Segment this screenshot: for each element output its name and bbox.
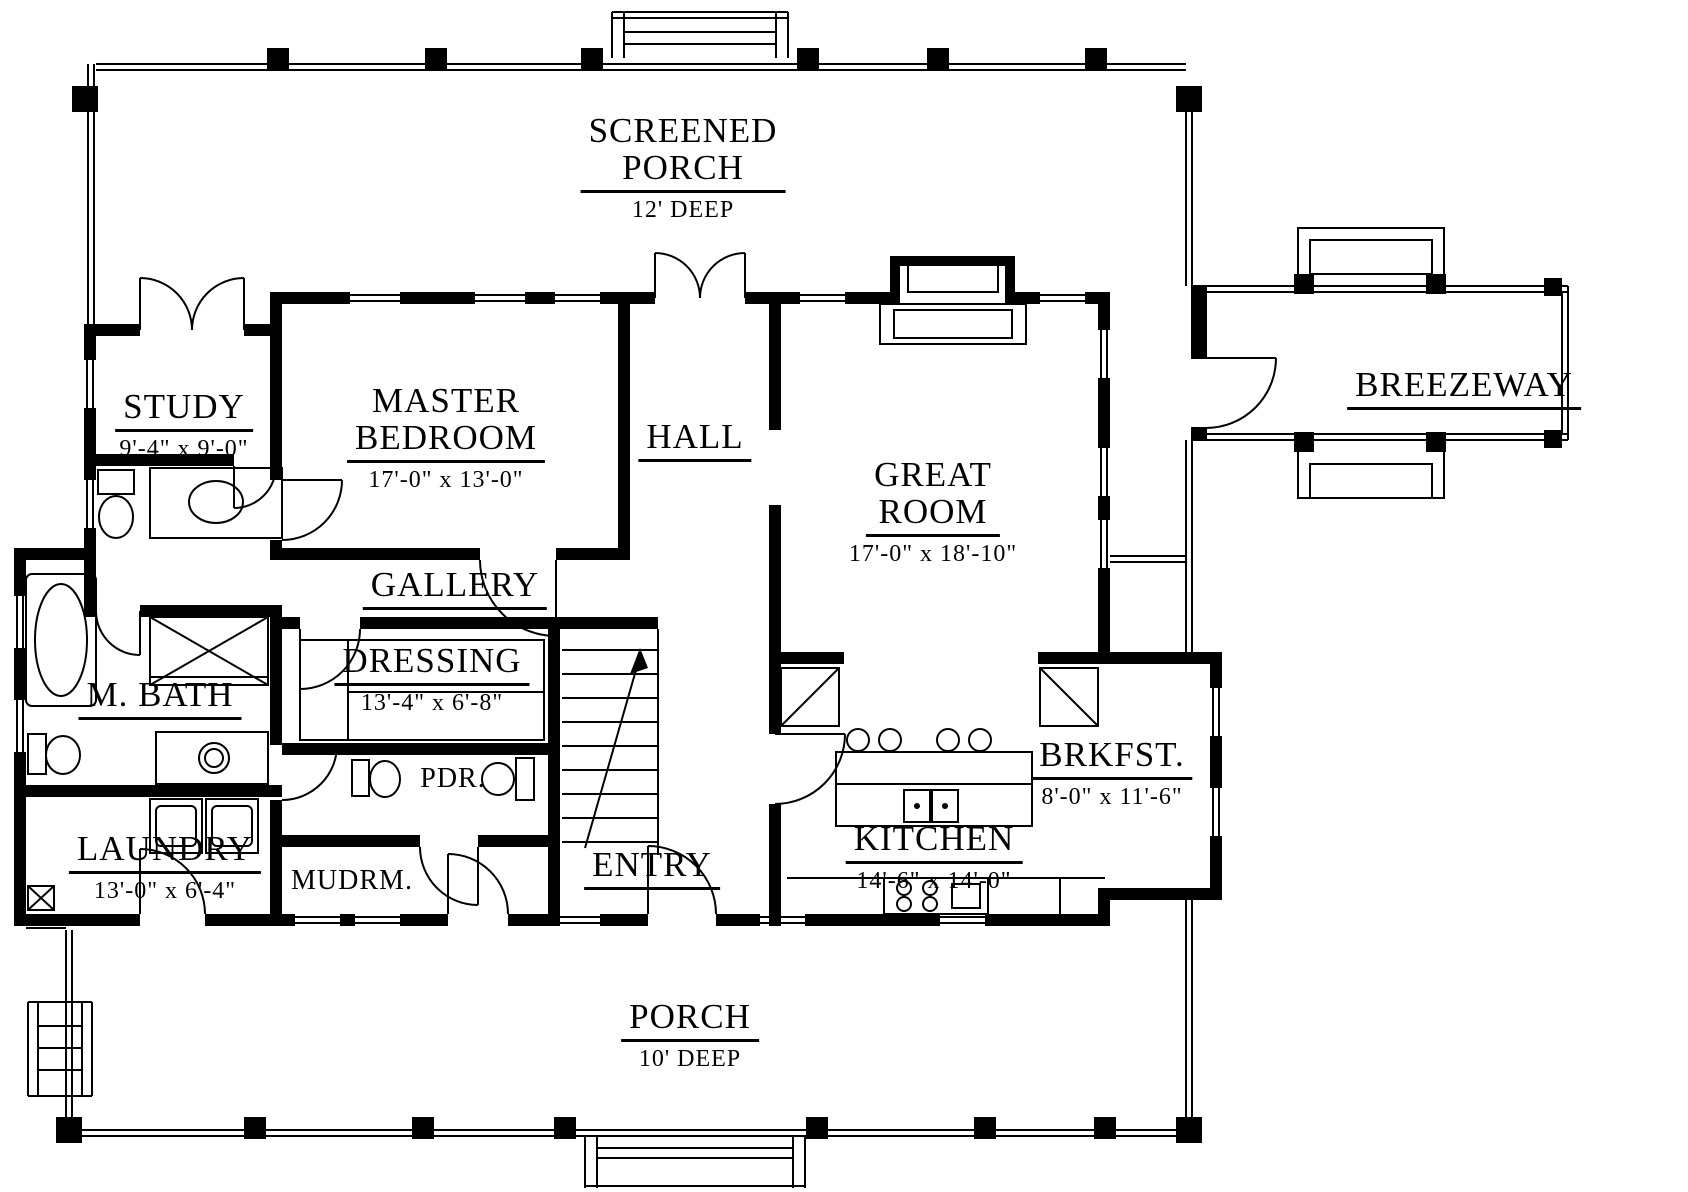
room-label-m-bath: M. BATH (78, 676, 241, 720)
room-name: LAUNDRY (69, 830, 261, 874)
stairs (562, 629, 658, 855)
room-label-entry: ENTRY (584, 846, 720, 890)
toilet (352, 760, 369, 796)
room-name: MASTER BEDROOM (347, 382, 545, 463)
room-dims: 14'-6" x 14'-0" (846, 869, 1023, 894)
sink (482, 763, 514, 795)
room-label-gallery: GALLERY (363, 566, 547, 610)
fireplace-hearth (880, 264, 1026, 344)
master-bath-fixtures (26, 468, 282, 784)
floor-plan: SCREENED PORCH 12' DEEP STUDY 9'-4" x 9'… (0, 0, 1688, 1192)
room-dims: 8'-0" x 11'-6" (1031, 785, 1192, 810)
room-dims: 13'-0" x 6'-4" (69, 879, 261, 904)
room-label-master-bedroom: MASTER BEDROOM 17'-0" x 13'-0" (347, 382, 545, 494)
room-name: HALL (638, 418, 751, 462)
room-dims: 13'-4" x 6'-8" (334, 691, 529, 716)
toilet (28, 734, 46, 774)
room-name: STUDY (115, 388, 253, 432)
room-name: BRKFST. (1031, 736, 1192, 780)
stairs-up-arrow (630, 648, 648, 674)
room-dims: 17'-0" x 13'-0" (347, 468, 545, 493)
room-name-line: PORCH (589, 149, 778, 186)
room-name: PORCH (621, 998, 759, 1042)
room-name-line: MASTER (355, 382, 537, 419)
porch-rails (26, 64, 1568, 1136)
room-dims: 9'-4" x 9'-0" (115, 437, 253, 462)
room-label-study: STUDY 9'-4" x 9'-0" (115, 388, 253, 463)
room-name: ENTRY (584, 846, 720, 890)
floor-plan-linework (0, 0, 1688, 1192)
room-name: BREEZEWAY (1347, 366, 1581, 410)
porch-columns (56, 48, 1562, 1143)
room-name: M. BATH (78, 676, 241, 720)
room-dims: 17'-0" x 18'-10" (849, 542, 1017, 567)
room-dims: 12' DEEP (581, 198, 786, 223)
room-name: DRESSING (334, 642, 529, 686)
room-label-laundry: LAUNDRY 13'-0" x 6'-4" (69, 830, 261, 905)
room-name: PDR. (420, 764, 485, 794)
room-name: GREAT ROOM (866, 456, 1000, 537)
room-name: MUDRM. (291, 866, 413, 896)
room-label-screened-porch: SCREENED PORCH 12' DEEP (581, 112, 786, 224)
room-name-line: GREAT (874, 456, 992, 493)
room-name: GALLERY (363, 566, 547, 610)
room-label-porch: PORCH 10' DEEP (621, 998, 759, 1073)
room-label-kitchen: KITCHEN 14'-6" x 14'-0" (846, 820, 1023, 895)
room-label-breezeway: BREEZEWAY (1347, 366, 1581, 410)
room-dims: 10' DEEP (621, 1047, 759, 1072)
room-name-line: ROOM (874, 493, 992, 530)
room-name: SCREENED PORCH (581, 112, 786, 193)
room-label-great-room: GREAT ROOM 17'-0" x 18'-10" (849, 456, 1017, 568)
breezeway-structure (1192, 228, 1444, 498)
room-label-pdr: PDR. (420, 764, 485, 794)
room-name: KITCHEN (846, 820, 1023, 864)
room-label-brkfst: BRKFST. 8'-0" x 11'-6" (1031, 736, 1192, 811)
room-label-dressing: DRESSING 13'-4" x 6'-8" (334, 642, 529, 717)
room-label-hall: HALL (638, 418, 751, 462)
room-name-line: BEDROOM (355, 419, 537, 456)
room-name-line: SCREENED (589, 112, 778, 149)
room-label-mudrm: MUDRM. (291, 866, 413, 896)
